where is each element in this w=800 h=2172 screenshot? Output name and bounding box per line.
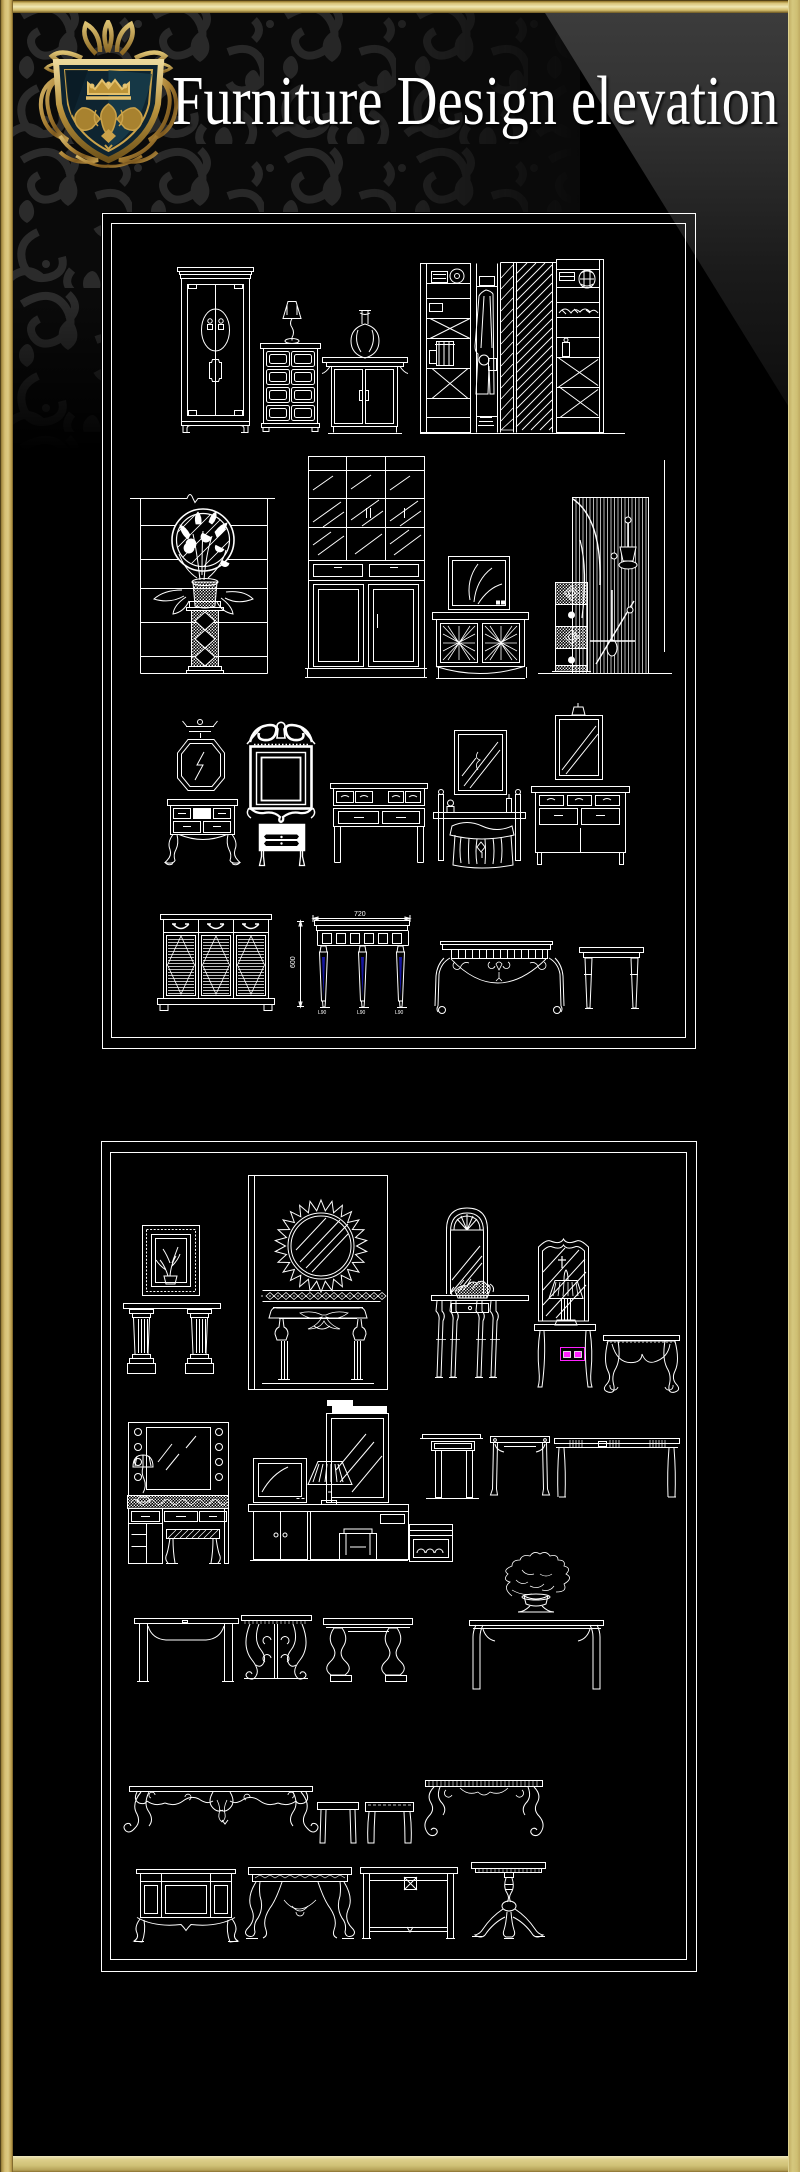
svg-text:600: 600 bbox=[290, 956, 297, 968]
svg-text:L90: L90 bbox=[318, 1010, 327, 1016]
svg-text:L90: L90 bbox=[357, 1010, 366, 1016]
svg-text:720: 720 bbox=[354, 911, 366, 918]
svg-text:L90: L90 bbox=[395, 1010, 404, 1016]
